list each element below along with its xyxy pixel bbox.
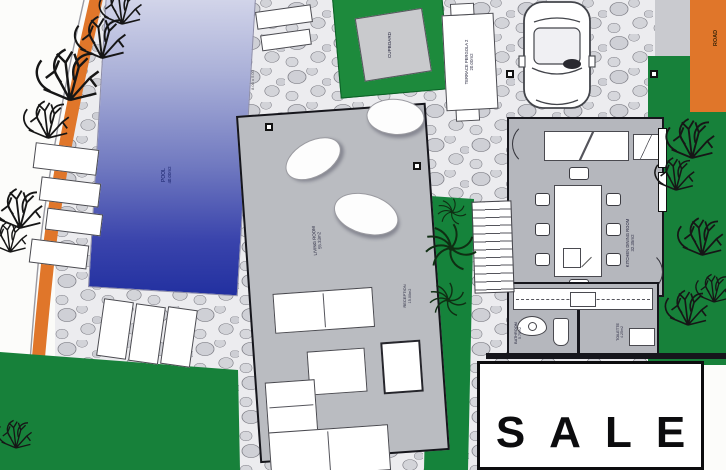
tree-icon bbox=[0, 420, 32, 448]
palm-tree-icon bbox=[438, 199, 466, 224]
tree-icon bbox=[696, 274, 726, 302]
site-plan: POOL 40.00m2 8.00 x 5.00 CUPBOARD TERRAC… bbox=[0, 0, 726, 470]
car-icon bbox=[519, 2, 595, 108]
sale-sign: SALE bbox=[477, 361, 704, 470]
palm-tree-icon bbox=[430, 283, 466, 315]
tree-icon bbox=[678, 218, 723, 255]
tree-icon bbox=[24, 101, 69, 138]
tree-icon bbox=[666, 119, 714, 158]
palm-tree-icon bbox=[426, 224, 476, 269]
tree-icon bbox=[655, 158, 694, 190]
sale-sign-text: SALE bbox=[472, 374, 709, 458]
tree-icon bbox=[37, 49, 99, 100]
